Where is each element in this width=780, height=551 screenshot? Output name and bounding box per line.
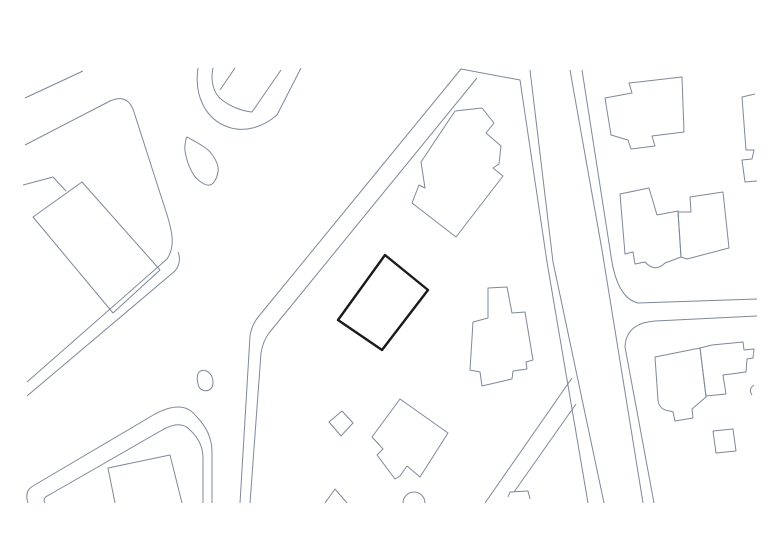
building-mid-right-west: [620, 188, 681, 268]
road-north-inner-west-edge: [530, 70, 604, 503]
building-south-peak-clipped: [325, 489, 347, 503]
road-southwest-branch-upper-edge: [485, 378, 572, 503]
building-southwest-clipped: [108, 455, 182, 503]
building-top-center-jagged: [412, 108, 503, 237]
building-right-edge-clipped: [742, 94, 757, 182]
building-branch-end-clipped: [508, 491, 530, 499]
building-west-overlap-line: [23, 177, 66, 191]
road-east-branch-lower-edge: [625, 316, 757, 503]
building-top-right: [605, 77, 684, 149]
buildings-layer: [23, 77, 757, 503]
road-loop-inner-edge: [212, 68, 281, 112]
site-plan-canvas: [0, 0, 780, 551]
pond-leaf-shape: [185, 137, 218, 185]
building-southeast-hook: [750, 385, 754, 395]
building-mid-right-east: [678, 192, 729, 259]
building-south-shed: [329, 411, 353, 436]
building-southeast-complex-west: [655, 348, 706, 421]
site-plan-page: [0, 0, 780, 551]
road-main-west-edge: [240, 69, 588, 503]
building-southeast-complex-east: [700, 342, 754, 396]
building-south-house-notched: [372, 399, 448, 479]
road-west-curve-outer-edge: [25, 99, 172, 382]
building-south-circle-clipped: [403, 492, 425, 503]
road-north-east-pair-right-and-east-branch-upper: [582, 70, 757, 303]
building-center-cross-shaped: [470, 287, 533, 386]
highlight-layer: [338, 255, 428, 350]
road-loop-spur-line: [220, 68, 235, 90]
highlighted-site-rectangle: [338, 255, 428, 350]
road-main-east-edge: [250, 78, 477, 503]
road-loop-outer-edge: [197, 68, 301, 129]
road-top-left-upper-edge: [25, 71, 83, 98]
water-layer: [185, 137, 218, 391]
roads-layer: [25, 68, 757, 503]
building-west-large: [33, 182, 160, 313]
road-north-east-pair-left: [570, 70, 643, 503]
pond-small-blob: [197, 370, 213, 390]
building-southeast-square: [713, 429, 736, 453]
